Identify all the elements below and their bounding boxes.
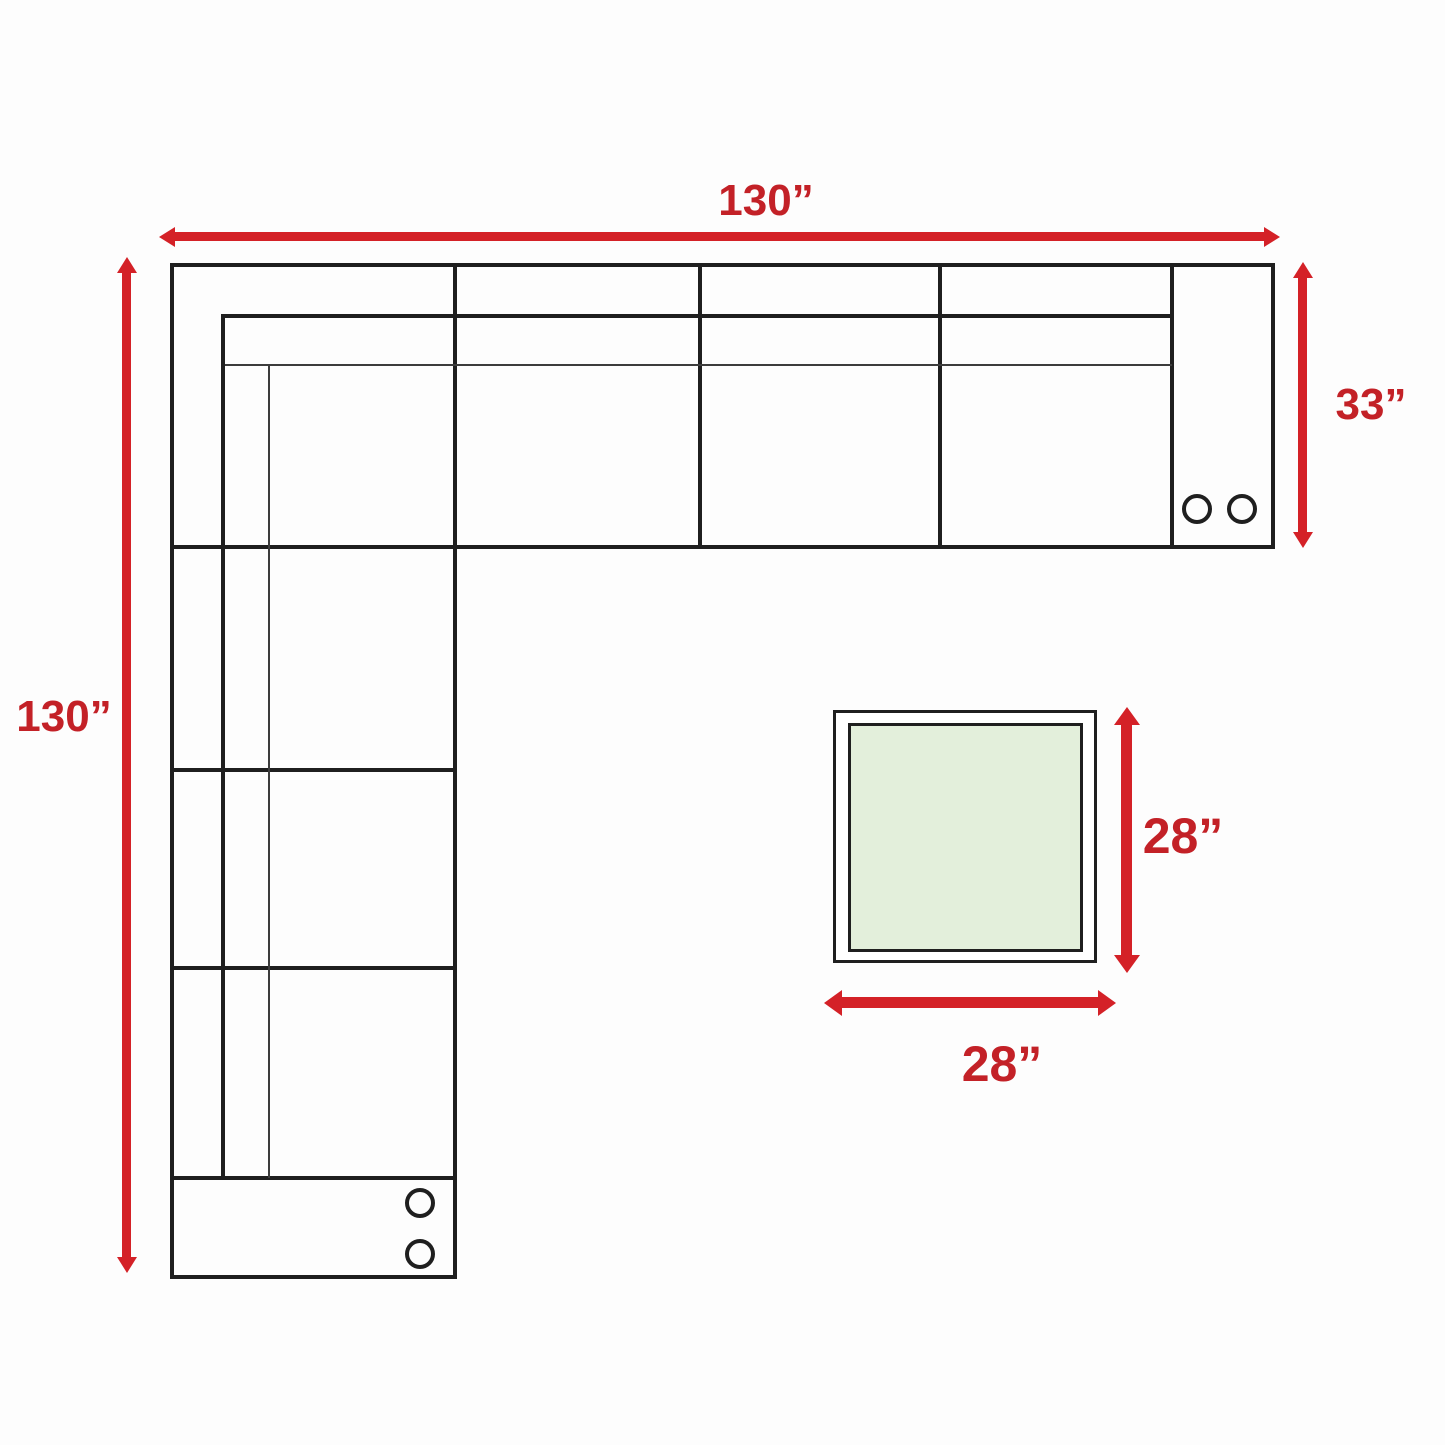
backrest-line-thin — [221, 364, 1172, 366]
arrowhead-left-icon — [824, 990, 842, 1016]
furniture-dimension-diagram: 130” 130” 33” 28” 28” — [0, 0, 1445, 1445]
cupholder-circle-icon — [405, 1239, 435, 1269]
arrowhead-right-icon — [1264, 227, 1280, 247]
left-wing-seat-divider-1 — [170, 768, 457, 772]
arrowhead-up-icon — [117, 257, 137, 273]
arrow-shaft — [174, 232, 1265, 241]
table-width-dimension-label: 28” — [922, 1038, 1082, 1091]
sofa-depth-dimension-label: 33” — [1301, 382, 1441, 428]
sofa-horizontal-section-bottom — [170, 545, 1275, 549]
table-depth-dimension-label: 28” — [1103, 810, 1263, 863]
arrowhead-left-icon — [159, 227, 175, 247]
table-width-dimension-arrow — [824, 990, 1116, 1016]
sofa-outline-top — [170, 263, 1275, 267]
arrowhead-up-icon — [1114, 707, 1140, 725]
arrowhead-up-icon — [1293, 262, 1313, 278]
sofa-width-dimension-label: 130” — [686, 178, 846, 224]
sofa-length-dimension-label: 130” — [0, 694, 129, 740]
arrowhead-down-icon — [1293, 532, 1313, 548]
arrow-shaft — [122, 272, 131, 1258]
left-arm-inner-line-thick — [221, 314, 225, 1178]
arrowhead-down-icon — [117, 1257, 137, 1273]
cupholder-circle-icon — [405, 1188, 435, 1218]
cupholder-circle-icon — [1227, 494, 1257, 524]
sofa-width-dimension-arrow — [159, 227, 1280, 247]
top-run-armrest-divider — [1170, 263, 1174, 549]
left-arm-inner-line-thin — [268, 364, 270, 1178]
sofa-outline-bottom — [170, 1275, 457, 1279]
arrowhead-right-icon — [1098, 990, 1116, 1016]
top-run-seat-divider-1 — [698, 263, 702, 549]
left-wing-armrest-divider — [170, 1176, 457, 1180]
arrow-shaft — [841, 997, 1099, 1008]
top-run-seat-divider-2 — [938, 263, 942, 549]
sofa-length-dimension-arrow — [117, 257, 137, 1273]
end-table-surface — [848, 723, 1083, 952]
backrest-line-thick — [221, 314, 1172, 318]
arrowhead-down-icon — [1114, 955, 1140, 973]
left-wing-seat-divider-2 — [170, 966, 457, 970]
sofa-outline-right — [1271, 263, 1275, 549]
cupholder-circle-icon — [1182, 494, 1212, 524]
